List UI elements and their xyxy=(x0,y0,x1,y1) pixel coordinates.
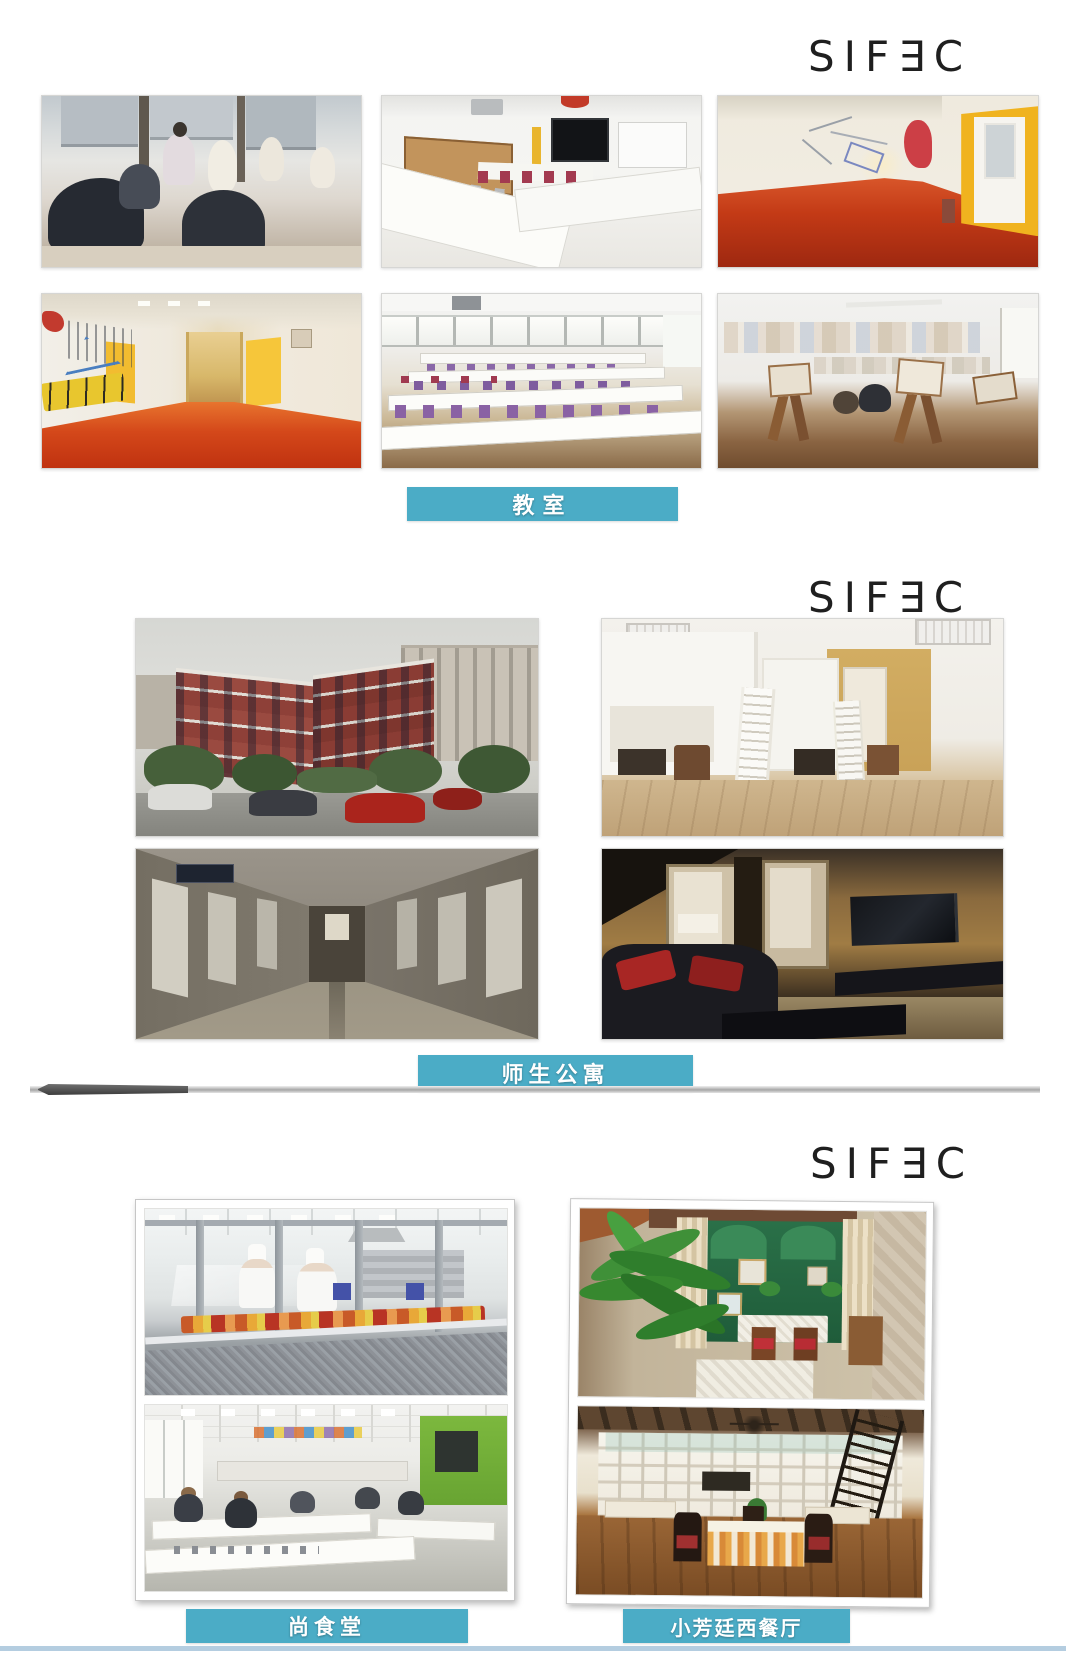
photo-canteen-counter xyxy=(144,1208,508,1396)
photo-apartment-corridor xyxy=(135,848,539,1040)
apartments-label-text: 师生公寓 xyxy=(501,1057,609,1089)
photo-living-room-tv xyxy=(601,848,1004,1040)
canteen-label-text: 尚食堂 xyxy=(288,1611,366,1641)
photo-student-dining-hall xyxy=(144,1404,508,1592)
section-label-canteen: 尚食堂 xyxy=(186,1609,468,1643)
photo-restaurant-courtyard xyxy=(577,1207,927,1401)
section-label-western-restaurant: 小芳廷西餐厅 xyxy=(623,1609,850,1643)
photo-red-corridor xyxy=(717,95,1039,268)
photo-dorm-loft-beds xyxy=(601,618,1004,837)
photo-graffiti-corridor xyxy=(41,293,362,469)
photo-art-studio xyxy=(717,293,1039,469)
restaurant-photo-frame xyxy=(566,1198,934,1608)
section-label-classrooms: 教室 xyxy=(407,487,678,521)
sifec-logo-3: SIF∃C xyxy=(810,1143,974,1185)
photo-restaurant-interior xyxy=(575,1405,925,1599)
western-restaurant-label-text: 小芳廷西餐厅 xyxy=(671,1612,803,1641)
page-bottom-rule xyxy=(0,1646,1066,1651)
photo-fashion-studio xyxy=(41,95,362,268)
brochure-page: SIF∃C xyxy=(0,0,1066,1653)
photo-sewing-classroom xyxy=(381,293,702,469)
photo-apartment-building xyxy=(135,618,539,837)
photo-classroom-tv xyxy=(381,95,702,268)
dining-hall-photo-frame xyxy=(135,1199,515,1601)
classrooms-label-text: 教室 xyxy=(512,488,572,520)
sifec-logo: SIF∃C xyxy=(808,36,972,78)
sifec-logo-2: SIF∃C xyxy=(808,577,972,619)
